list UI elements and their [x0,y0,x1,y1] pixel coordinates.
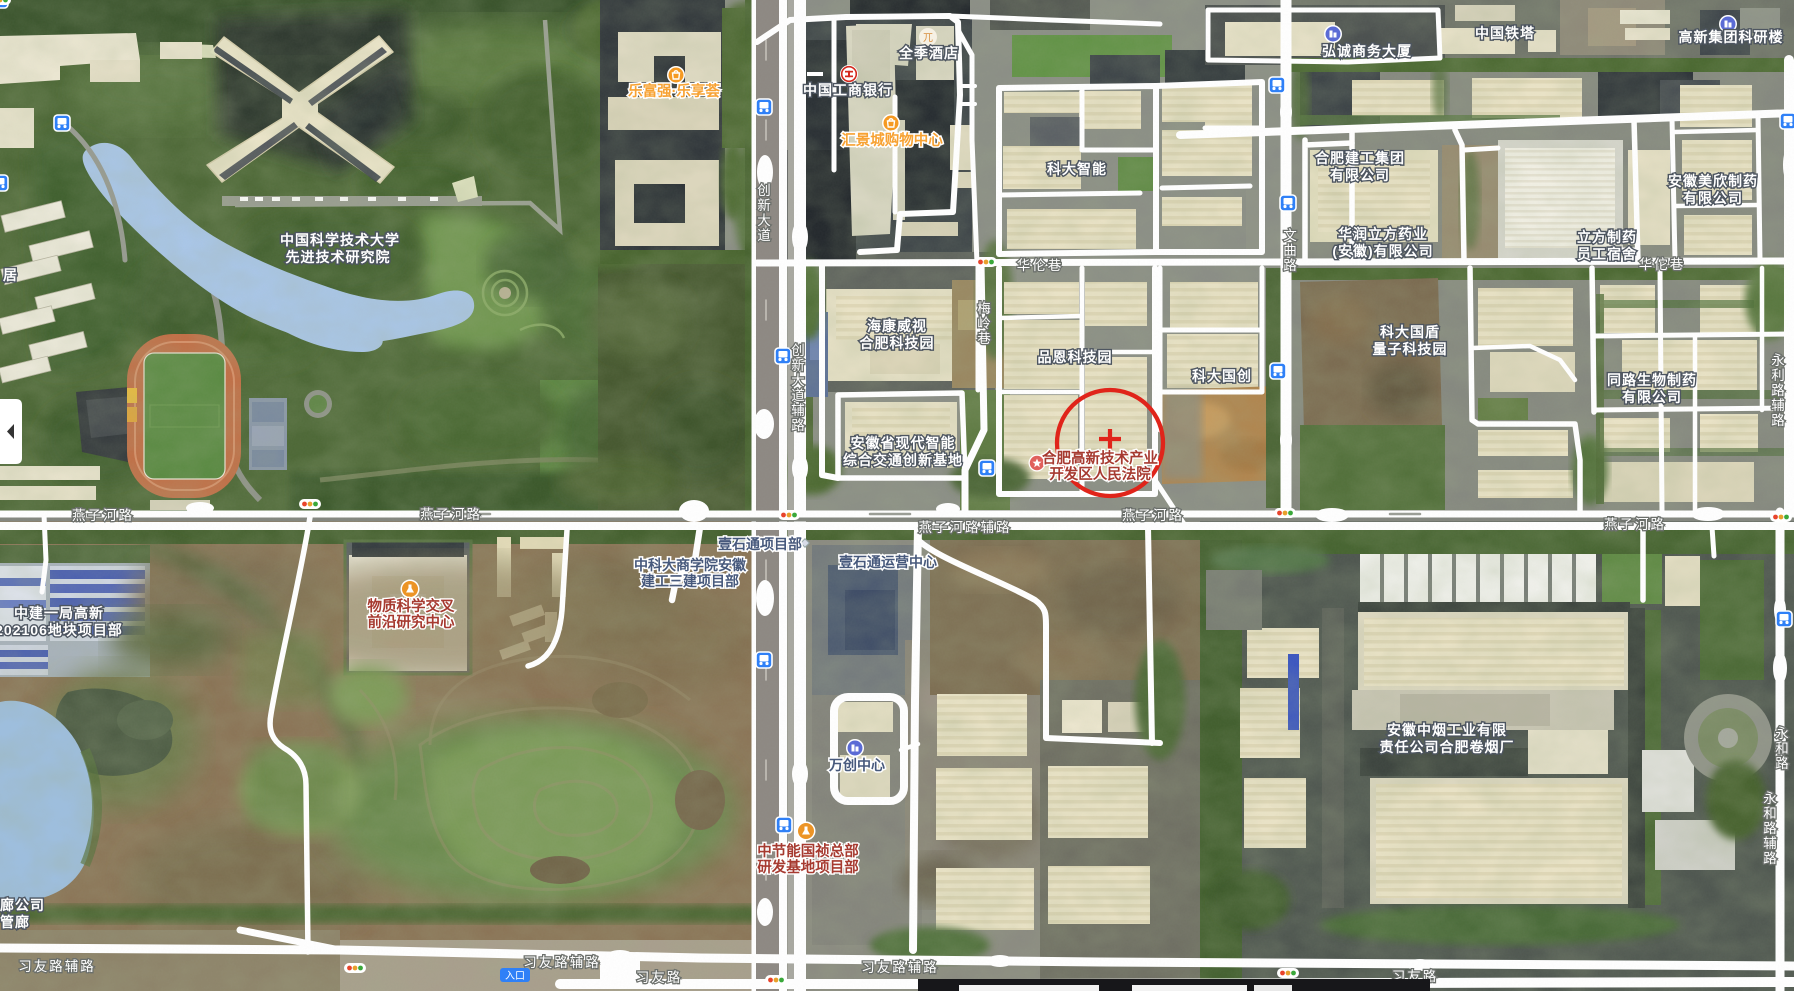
svg-text:燕子河路: 燕子河路 [420,507,482,522]
svg-text:立方制药: 立方制药 [1577,229,1637,245]
svg-text:开发区人民法院: 开发区人民法院 [1049,465,1151,483]
svg-text:有限公司: 有限公司 [1683,190,1743,206]
svg-text:(安徽)有限公司: (安徽)有限公司 [1332,243,1433,259]
svg-text:弘诚商务大厦: 弘诚商务大厦 [1322,43,1412,59]
svg-text:前沿研究中心: 前沿研究中心 [368,613,455,631]
svg-text:万创中心: 万创中心 [828,757,885,773]
svg-text:量子科技园: 量子科技园 [1373,341,1448,357]
svg-text:永和路: 永和路 [1775,726,1791,771]
svg-text:有限公司: 有限公司 [1330,167,1390,183]
svg-text:同路生物制药: 同路生物制药 [1607,372,1697,388]
svg-text:梅岭巷: 梅岭巷 [977,301,993,346]
svg-text:乐富强·乐享荟: 乐富强·乐享荟 [628,82,720,100]
svg-text:中建一局高新: 中建一局高新 [14,605,104,621]
svg-text:华伦巷: 华伦巷 [1017,258,1064,273]
svg-text:习友路辅路: 习友路辅路 [523,955,601,970]
svg-text:研发基地项目部: 研发基地项目部 [757,858,859,876]
svg-text:责任公司合肥卷烟厂: 责任公司合肥卷烟厂 [1380,739,1515,755]
svg-text:燕子河路: 燕子河路 [1122,508,1184,523]
svg-text:品恩科技园: 品恩科技园 [1038,349,1113,365]
svg-text:建工三建项目部: 建工三建项目部 [641,573,739,589]
svg-text:科大智能: 科大智能 [1047,161,1107,177]
svg-text:习友路辅路: 习友路辅路 [18,959,96,974]
svg-text:全季酒店: 全季酒店 [898,45,959,61]
svg-text:合肥建工集团: 合肥建工集团 [1315,150,1405,166]
svg-text:兀: 兀 [923,33,933,44]
svg-text:安徽美欣制药: 安徽美欣制药 [1668,173,1758,189]
svg-text:壹石通项目部: 壹石通项目部 [718,536,802,552]
svg-text:永和路辅路: 永和路辅路 [1763,791,1779,866]
svg-text:汇景城购物中心: 汇景城购物中心 [841,131,943,149]
svg-text:入口: 入口 [505,971,525,982]
svg-text:综合交通创新基地: 综合交通创新基地 [843,452,963,468]
svg-text:中节能国祯总部: 中节能国祯总部 [757,842,859,860]
svg-text:创新大道辅路: 创新大道辅路 [791,343,807,433]
svg-text:廊公司: 廊公司 [0,897,45,913]
svg-text:合肥科技园: 合肥科技园 [860,335,935,351]
svg-text:中国工商银行: 中国工商银行 [803,82,893,98]
svg-text:先进技术研究院: 先进技术研究院 [286,249,391,265]
svg-text:燕子河路辅路: 燕子河路辅路 [919,520,1012,535]
svg-text:海康威视: 海康威视 [867,318,927,334]
svg-text:壹石通运营中心: 壹石通运营中心 [839,554,937,570]
svg-text:华佗巷: 华佗巷 [1639,256,1686,272]
svg-text:科大国盾: 科大国盾 [1380,324,1440,340]
svg-text:中国铁塔: 中国铁塔 [1475,25,1535,41]
svg-text:燕子河路: 燕子河路 [72,508,134,523]
svg-text:永利路辅路: 永利路辅路 [1771,353,1787,428]
svg-text:员工宿舍: 员工宿舍 [1577,246,1637,262]
svg-text:管廊: 管廊 [0,914,30,930]
svg-text:中国科学技术大学: 中国科学技术大学 [280,232,400,248]
svg-text:习友路辅路: 习友路辅路 [861,960,939,975]
svg-text:合肥高新技术产业: 合肥高新技术产业 [1041,449,1158,467]
svg-text:202106地块项目部: 202106地块项目部 [0,622,123,638]
svg-text:安徽省现代智能: 安徽省现代智能 [851,435,956,451]
svg-text:安徽中烟工业有限: 安徽中烟工业有限 [1387,722,1507,738]
svg-text:物质科学交叉: 物质科学交叉 [368,597,455,615]
svg-text:有限公司: 有限公司 [1622,389,1682,405]
svg-text:华润立方药业: 华润立方药业 [1338,226,1428,242]
svg-text:文曲路: 文曲路 [1283,228,1299,273]
svg-text:创新大道: 创新大道 [757,183,773,243]
svg-text:习友路: 习友路 [636,970,683,985]
svg-text:高新集团科研楼: 高新集团科研楼 [1679,29,1784,45]
svg-text:中科大商学院安徽: 中科大商学院安徽 [634,557,747,573]
svg-text:燕子河路: 燕子河路 [1604,517,1666,532]
svg-text:科大国创: 科大国创 [1192,368,1252,384]
svg-text:居: 居 [3,267,18,283]
